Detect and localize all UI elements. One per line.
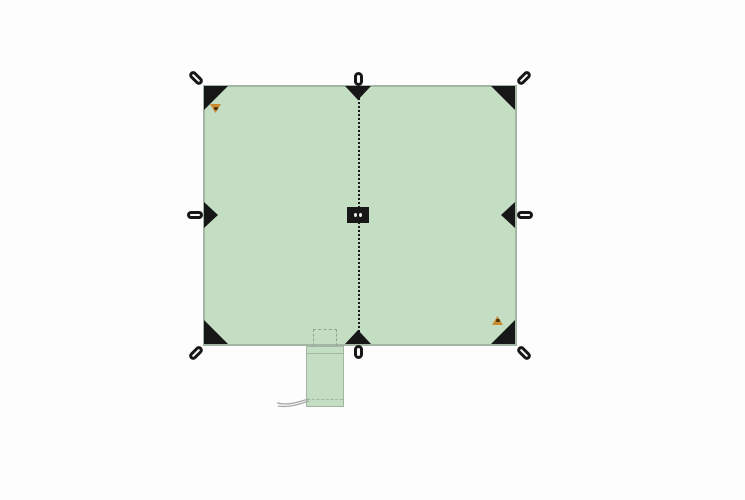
eyelet-icon bbox=[354, 213, 357, 217]
stuff-pocket-outline bbox=[313, 329, 337, 346]
cord-loop-left-middle bbox=[187, 211, 203, 219]
cord-loop-bottom-right bbox=[516, 345, 533, 362]
cord-loop-top-left bbox=[188, 70, 205, 87]
brand-logo-mark bbox=[214, 107, 218, 110]
eyelet-icon bbox=[359, 213, 362, 217]
cord-loop-bottom-left bbox=[188, 345, 205, 362]
center-patch bbox=[347, 207, 369, 223]
drawstring-cord bbox=[276, 392, 310, 408]
stuff-sack bbox=[306, 346, 344, 407]
cord-loop-right-middle bbox=[517, 211, 533, 219]
product-image-tarp bbox=[0, 0, 745, 500]
brand-logo-mark bbox=[496, 319, 500, 322]
cord-loop-top-right bbox=[516, 70, 533, 87]
cord-loop-top-middle bbox=[354, 72, 363, 86]
sack-collar-seam bbox=[307, 353, 343, 354]
sack-hem-seam bbox=[307, 399, 343, 400]
cord-loop-bottom-middle bbox=[354, 345, 363, 359]
